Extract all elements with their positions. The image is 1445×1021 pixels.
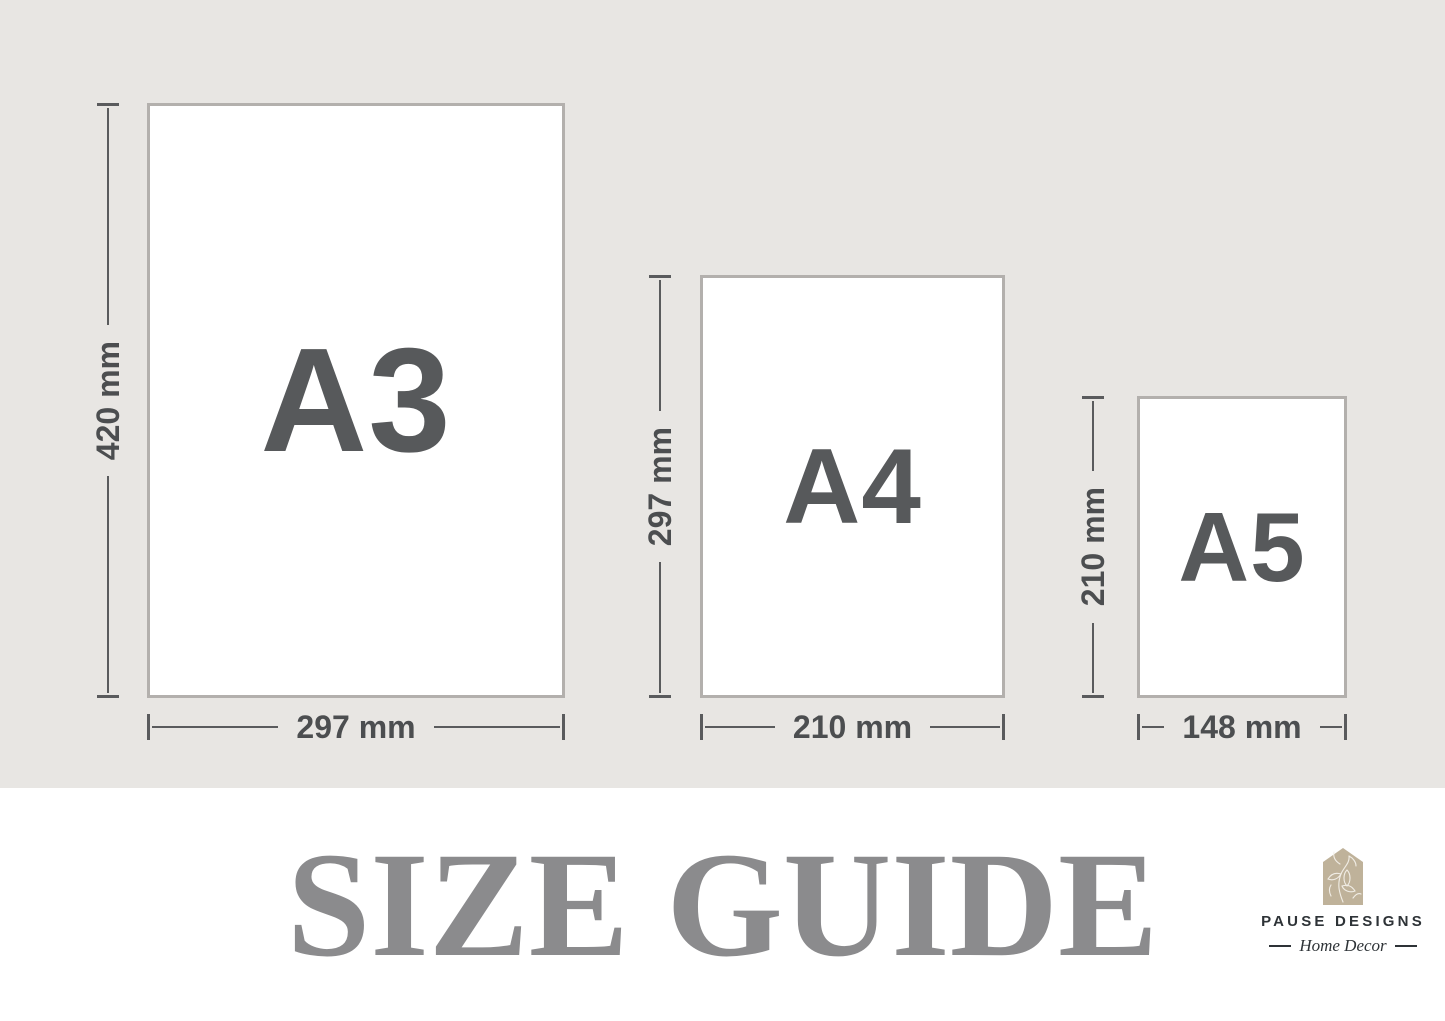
size-guide-page: 420 mm A3 297 mm 297 mm A4 210 — [0, 0, 1445, 1021]
dimension-line — [434, 726, 560, 728]
house-floral-icon — [1323, 848, 1363, 905]
a4-width-dimension: 210 mm — [700, 710, 1005, 744]
a4-height-dimension: 297 mm — [648, 275, 672, 698]
a3-size-label: A3 — [260, 327, 451, 475]
dimension-cap — [649, 275, 671, 278]
brand-tagline-row: Home Decor — [1269, 936, 1416, 956]
dimension-line — [1142, 726, 1164, 728]
tagline-dash-right — [1395, 945, 1417, 947]
dimension-cap — [97, 695, 119, 698]
a4-width-label: 210 mm — [777, 711, 928, 743]
footer-strip: SIZE GUIDE PAUSE DESIGNS Home Decor — [0, 788, 1445, 1021]
dimension-line — [107, 476, 109, 693]
dimension-line — [107, 108, 109, 325]
dimension-cap — [1344, 714, 1347, 740]
dimension-line — [659, 280, 661, 411]
page-title: SIZE GUIDE — [287, 830, 1158, 980]
dimension-line — [705, 726, 775, 728]
brand-logo: PAUSE DESIGNS Home Decor — [1253, 848, 1433, 956]
dimension-cap — [1137, 714, 1140, 740]
a3-paper-rect: A3 — [147, 103, 565, 698]
a3-height-label: 420 mm — [92, 327, 124, 474]
dimension-line — [1092, 401, 1094, 471]
dimension-cap — [1082, 695, 1104, 698]
a3-height-dimension: 420 mm — [96, 103, 120, 698]
tagline-dash-left — [1269, 945, 1291, 947]
brand-name: PAUSE DESIGNS — [1261, 913, 1425, 930]
dimension-cap — [649, 695, 671, 698]
dimension-line — [1092, 623, 1094, 693]
a5-height-dimension: 210 mm — [1081, 396, 1105, 698]
dimension-line — [930, 726, 1000, 728]
diagram-area: 420 mm A3 297 mm 297 mm A4 210 — [0, 0, 1445, 788]
a5-paper-rect: A5 — [1137, 396, 1347, 698]
dimension-line — [152, 726, 278, 728]
dimension-cap — [1082, 396, 1104, 399]
a3-width-label: 297 mm — [280, 711, 431, 743]
brand-tagline: Home Decor — [1299, 936, 1386, 956]
dimension-cap — [97, 103, 119, 106]
a5-height-label: 210 mm — [1077, 473, 1109, 620]
a4-size-label: A4 — [783, 433, 922, 540]
a3-width-dimension: 297 mm — [147, 710, 565, 744]
a5-size-label: A5 — [1178, 498, 1305, 596]
a5-width-dimension: 148 mm — [1137, 710, 1347, 744]
a4-height-label: 297 mm — [644, 413, 676, 560]
dimension-cap — [700, 714, 703, 740]
dimension-cap — [562, 714, 565, 740]
dimension-line — [1320, 726, 1342, 728]
a4-paper-rect: A4 — [700, 275, 1005, 698]
dimension-cap — [147, 714, 150, 740]
dimension-cap — [1002, 714, 1005, 740]
a5-width-label: 148 mm — [1166, 711, 1317, 743]
dimension-line — [659, 562, 661, 693]
